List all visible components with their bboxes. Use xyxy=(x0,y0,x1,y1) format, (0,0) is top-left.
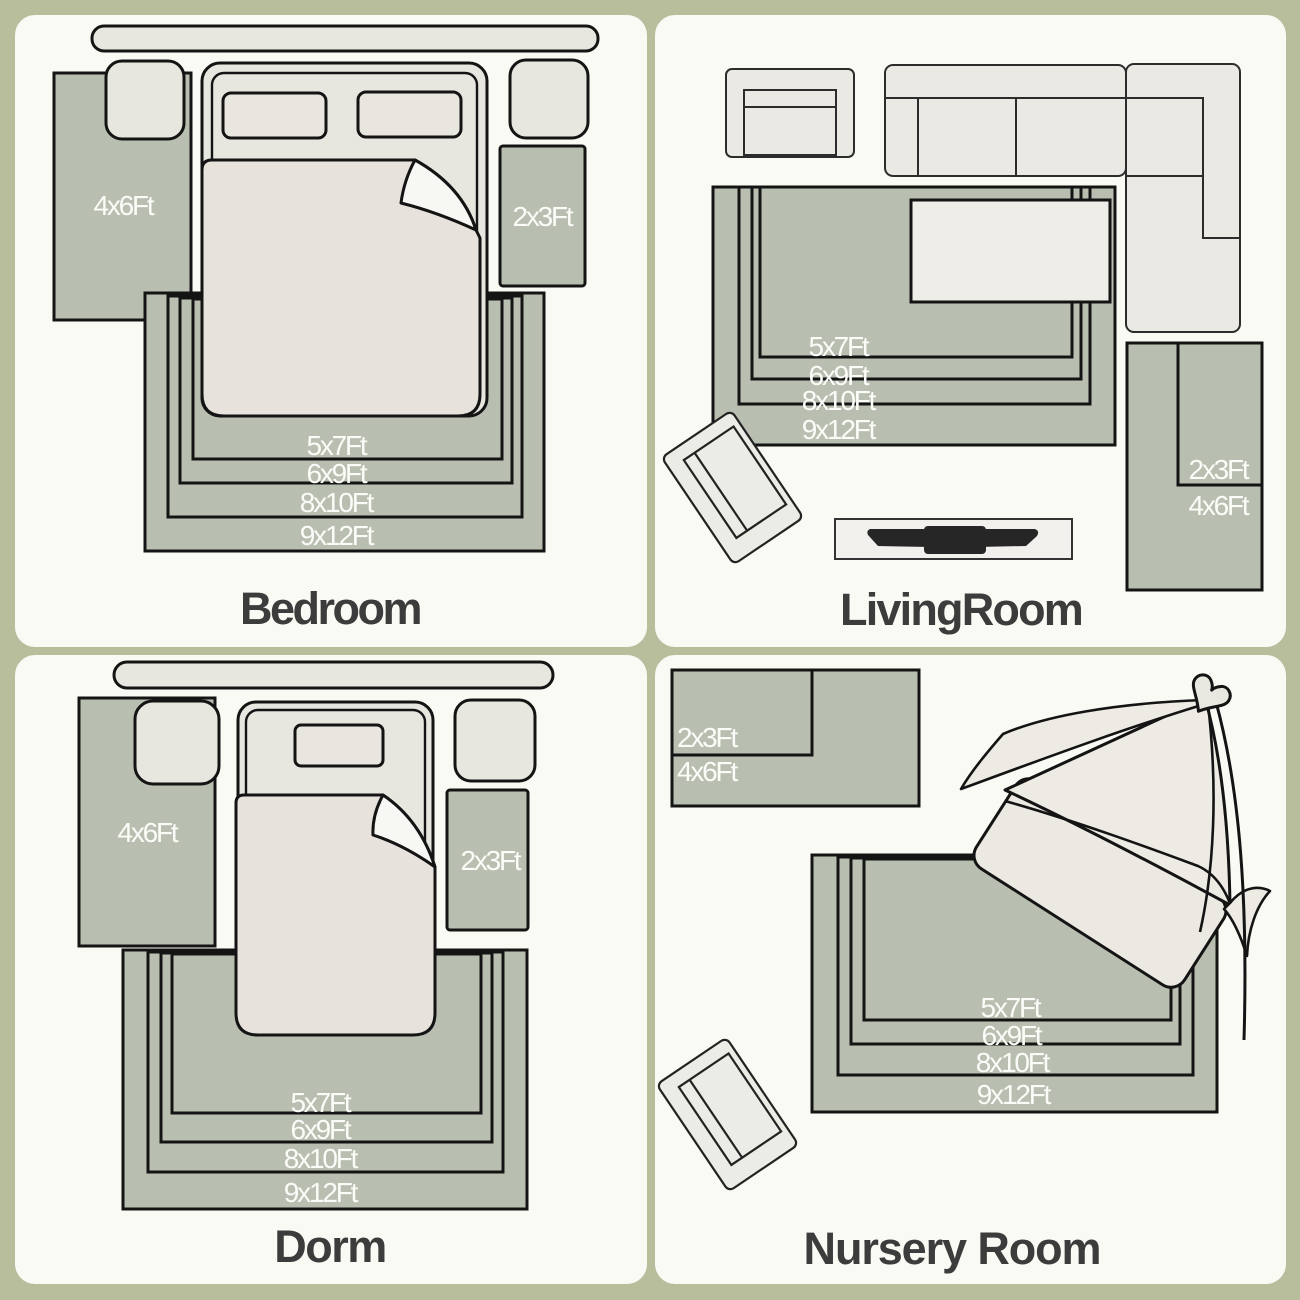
svg-text:4x6Ft: 4x6Ft xyxy=(1188,490,1249,521)
svg-text:4x6Ft: 4x6Ft xyxy=(677,756,738,787)
svg-text:9x12Ft: 9x12Ft xyxy=(284,1177,359,1208)
svg-text:6x9Ft: 6x9Ft xyxy=(290,1114,351,1145)
svg-text:5x7Ft: 5x7Ft xyxy=(980,992,1041,1023)
svg-text:6x9Ft: 6x9Ft xyxy=(306,458,367,489)
svg-text:Dorm: Dorm xyxy=(274,1221,386,1272)
svg-text:8x10Ft: 8x10Ft xyxy=(300,487,375,518)
svg-text:Nursery Room: Nursery Room xyxy=(804,1223,1101,1274)
svg-text:9x12Ft: 9x12Ft xyxy=(300,520,375,551)
svg-text:8x10Ft: 8x10Ft xyxy=(976,1047,1051,1078)
svg-text:4x6Ft: 4x6Ft xyxy=(93,190,154,221)
svg-text:9x12Ft: 9x12Ft xyxy=(802,414,877,445)
svg-text:5x7Ft: 5x7Ft xyxy=(808,331,869,362)
svg-text:4x6Ft: 4x6Ft xyxy=(117,817,178,848)
svg-text:LivingRoom: LivingRoom xyxy=(840,584,1082,635)
svg-text:Bedroom: Bedroom xyxy=(240,583,421,634)
svg-text:2x3Ft: 2x3Ft xyxy=(677,722,738,753)
svg-text:9x12Ft: 9x12Ft xyxy=(977,1079,1052,1110)
svg-text:5x7Ft: 5x7Ft xyxy=(306,430,367,461)
svg-text:2x3Ft: 2x3Ft xyxy=(460,845,521,876)
svg-text:8x10Ft: 8x10Ft xyxy=(284,1143,359,1174)
svg-text:2x3Ft: 2x3Ft xyxy=(512,201,573,232)
svg-text:2x3Ft: 2x3Ft xyxy=(1188,454,1249,485)
svg-text:8x10Ft: 8x10Ft xyxy=(802,385,877,416)
